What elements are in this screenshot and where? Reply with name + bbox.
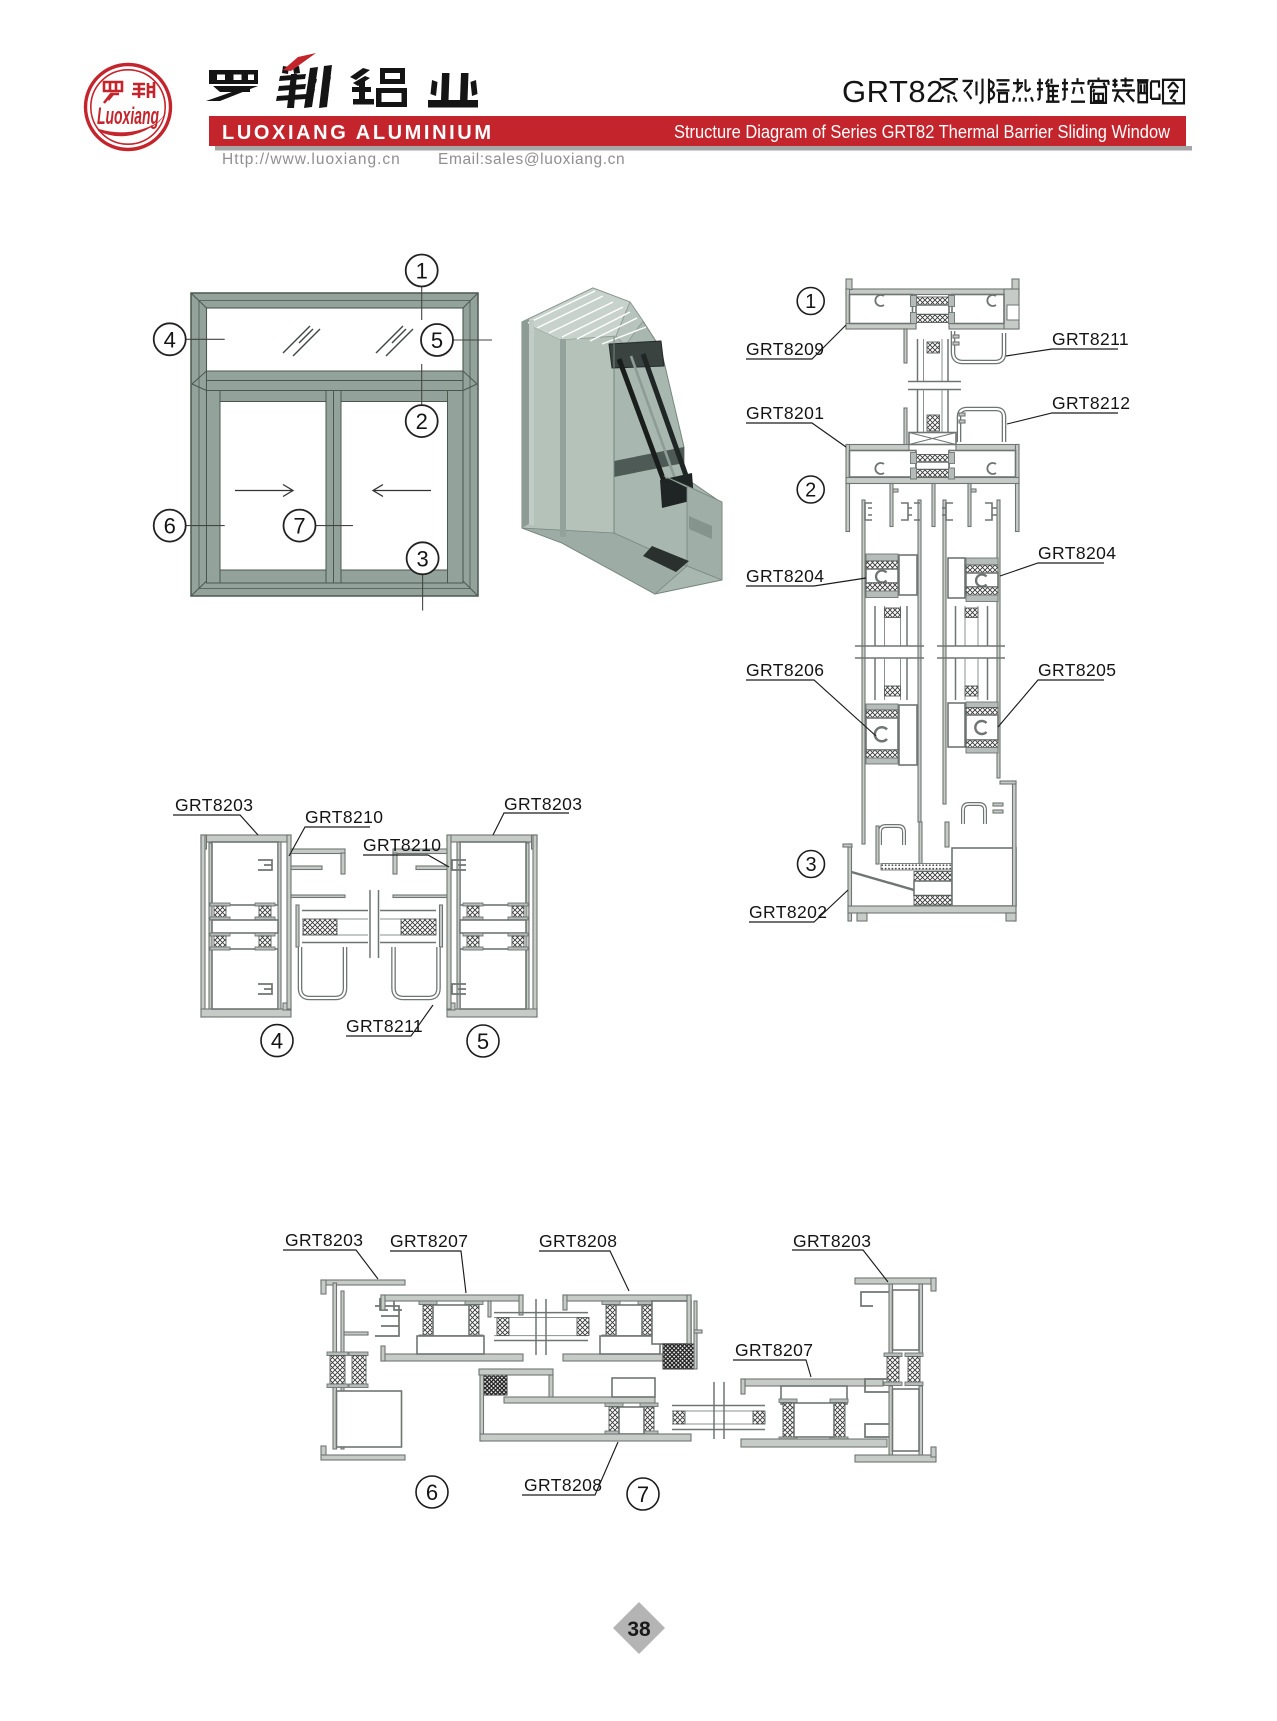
svg-text:GRT8202: GRT8202 [749,902,827,922]
svg-text:GRT8208: GRT8208 [539,1231,617,1251]
svg-text:3: 3 [416,546,428,571]
svg-text:GRT8211: GRT8211 [1052,329,1129,349]
svg-text:LUOXIANG ALUMINIUM: LUOXIANG ALUMINIUM [222,122,494,144]
svg-text:GRT8205: GRT8205 [1038,660,1116,680]
svg-text:GRT8201: GRT8201 [746,403,824,423]
svg-text:Structure Diagram of Series GR: Structure Diagram of Series GRT82 Therma… [674,121,1171,142]
svg-text:GRT8204: GRT8204 [746,566,824,586]
svg-text:GRT8203: GRT8203 [793,1231,871,1251]
svg-text:4: 4 [271,1029,283,1054]
svg-text:3: 3 [805,854,816,876]
svg-text:Luoxiang: Luoxiang [97,103,159,130]
svg-text:2: 2 [805,480,816,502]
svg-text:GRT82: GRT82 [842,74,944,109]
svg-text:GRT8203: GRT8203 [285,1230,363,1250]
svg-text:5: 5 [431,328,443,353]
svg-text:GRT8212: GRT8212 [1052,393,1130,413]
svg-text:Http://www.luoxiang.cn: Http://www.luoxiang.cn [222,151,401,168]
svg-text:GRT8211: GRT8211 [346,1016,423,1036]
svg-text:GRT8207: GRT8207 [735,1340,813,1360]
svg-text:6: 6 [426,1480,438,1505]
svg-text:1: 1 [805,291,816,313]
svg-text:GRT8207: GRT8207 [390,1231,468,1251]
svg-text:GRT8209: GRT8209 [746,339,824,359]
svg-text:1: 1 [416,259,428,284]
svg-text:Email:sales@luoxiang.cn: Email:sales@luoxiang.cn [438,151,625,168]
svg-text:7: 7 [637,1482,649,1507]
svg-text:GRT8210: GRT8210 [363,835,441,855]
svg-text:5: 5 [477,1029,489,1054]
svg-text:7: 7 [293,514,305,539]
svg-text:2: 2 [416,409,428,434]
svg-text:4: 4 [164,327,176,352]
svg-text:GRT8206: GRT8206 [746,660,824,680]
svg-text:GRT8204: GRT8204 [1038,543,1116,563]
svg-text:GRT8210: GRT8210 [305,807,383,827]
svg-text:GRT8208: GRT8208 [524,1475,602,1495]
svg-text:GRT8203: GRT8203 [504,794,582,814]
svg-text:38: 38 [627,1618,651,1641]
svg-text:GRT8203: GRT8203 [175,795,253,815]
svg-text:6: 6 [164,514,176,539]
